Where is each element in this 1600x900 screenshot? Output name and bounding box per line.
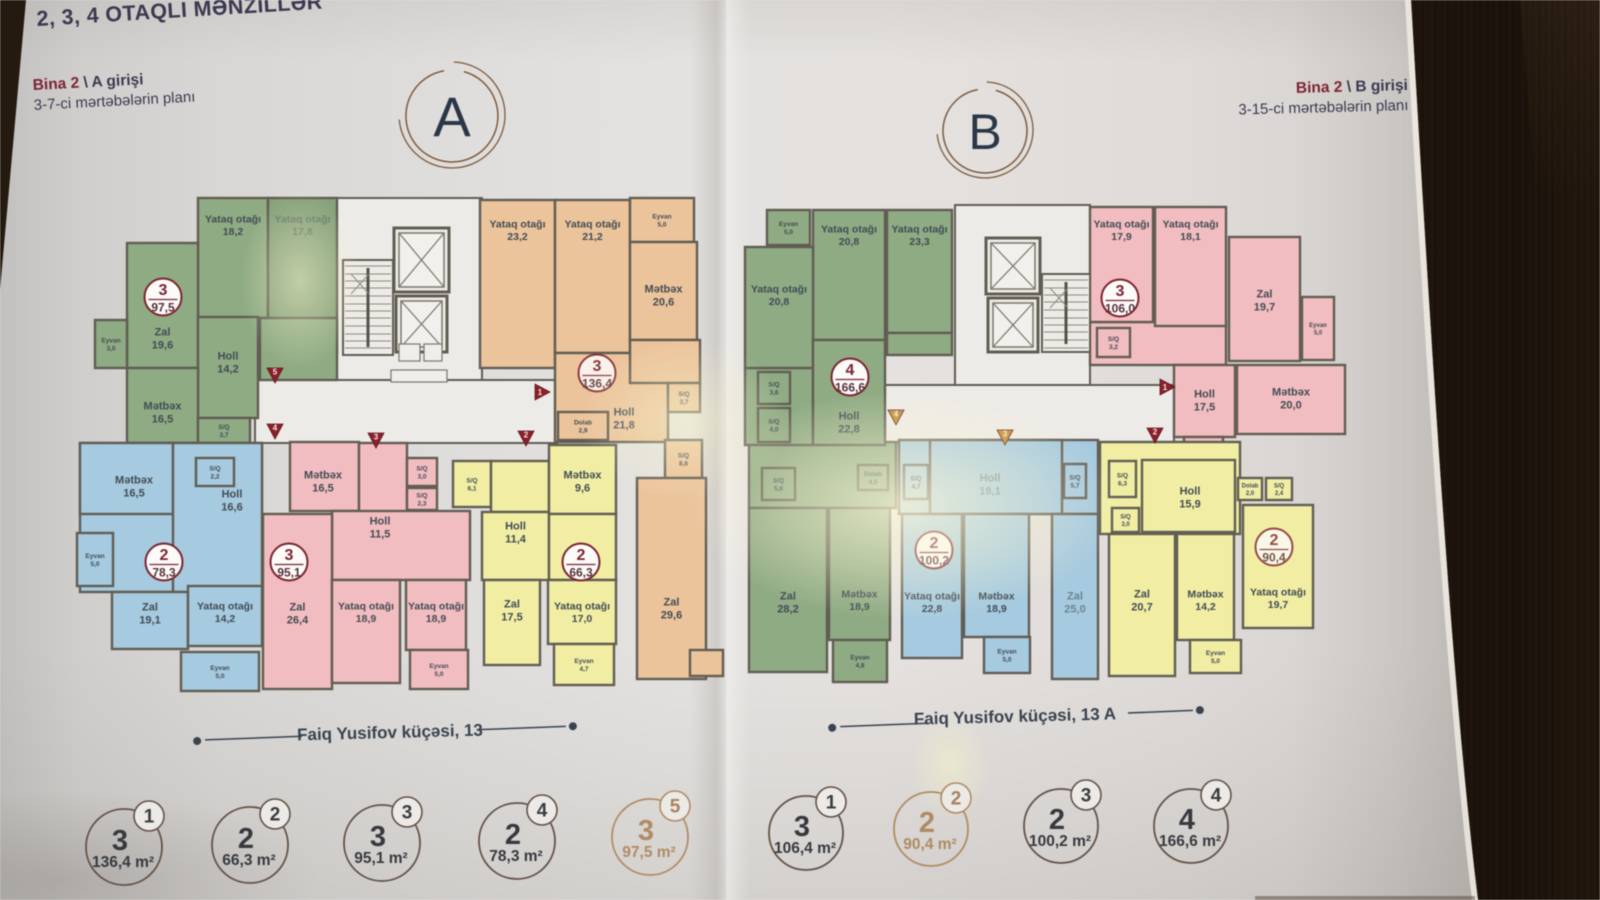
svg-text:Bina 2 \ B girişi: Bina 2 \ B girişi (1296, 77, 1408, 97)
svg-text:Zal19,7: Zal19,7 (1254, 288, 1275, 313)
svg-text:S/Q3,7: S/Q3,7 (218, 424, 229, 439)
svg-text:S/Q6,3: S/Q6,3 (1117, 472, 1128, 487)
svg-text:Zal17,5: Zal17,5 (501, 598, 522, 623)
svg-text:2: 2 (951, 789, 962, 810)
svg-text:4: 4 (846, 362, 855, 379)
svg-text:2: 2 (524, 431, 529, 440)
svg-text:2: 2 (919, 807, 935, 839)
svg-text:S/Q6,1: S/Q6,1 (466, 477, 477, 492)
svg-text:90,4: 90,4 (1262, 551, 1286, 565)
svg-text:Holl16,6: Holl16,6 (221, 488, 242, 513)
svg-text:3: 3 (593, 358, 602, 375)
svg-text:4: 4 (1211, 786, 1222, 807)
svg-text:Holl11,4: Holl11,4 (505, 520, 527, 545)
svg-text:Zal19,6: Zal19,6 (152, 326, 173, 351)
svg-text:S/Q2,3: S/Q2,3 (416, 492, 427, 507)
svg-text:4: 4 (537, 801, 548, 822)
svg-text:106,0: 106,0 (1105, 302, 1135, 316)
svg-text:1: 1 (538, 388, 543, 397)
svg-text:2: 2 (1049, 804, 1065, 836)
svg-text:78,3: 78,3 (152, 566, 176, 580)
svg-text:5: 5 (670, 797, 681, 818)
svg-text:1: 1 (144, 807, 155, 828)
svg-text:66,3 m²: 66,3 m² (222, 852, 275, 869)
svg-text:66,3: 66,3 (569, 566, 593, 580)
svg-text:Holl11,5: Holl11,5 (370, 515, 391, 540)
svg-text:4: 4 (273, 424, 278, 433)
svg-text:95,1 m²: 95,1 m² (354, 850, 407, 867)
svg-text:S/Q3,0: S/Q3,0 (1120, 515, 1131, 528)
svg-text:90,4 m²: 90,4 m² (903, 836, 956, 853)
svg-text:106,4 m²: 106,4 m² (774, 840, 836, 857)
svg-text:Holl17,5: Holl17,5 (1194, 388, 1215, 413)
svg-text:2: 2 (577, 547, 586, 564)
svg-text:Zal29,6: Zal29,6 (661, 596, 682, 621)
svg-text:B: B (968, 104, 1001, 160)
svg-text:2: 2 (270, 805, 281, 826)
svg-text:Holl14,2: Holl14,2 (217, 350, 238, 375)
svg-text:4: 4 (1179, 804, 1195, 836)
svg-text:97,5: 97,5 (151, 301, 175, 315)
svg-text:3: 3 (370, 821, 386, 853)
svg-text:3: 3 (112, 825, 128, 857)
svg-text:1: 1 (1163, 383, 1168, 392)
svg-text:166,6 m²: 166,6 m² (1159, 833, 1221, 850)
svg-text:3: 3 (285, 547, 294, 564)
svg-text:S/Q2,4: S/Q2,4 (1274, 484, 1285, 497)
svg-text:1: 1 (826, 793, 837, 814)
svg-text:97,5 m²: 97,5 m² (622, 844, 675, 861)
svg-text:Zal25,0: Zal25,0 (1064, 590, 1085, 615)
svg-text:3: 3 (1081, 786, 1092, 807)
svg-text:2: 2 (160, 547, 169, 564)
svg-text:3: 3 (159, 282, 168, 299)
svg-text:3: 3 (638, 815, 654, 847)
svg-text:2: 2 (1153, 428, 1158, 437)
svg-text:95,1: 95,1 (277, 566, 301, 580)
svg-text:3: 3 (794, 811, 810, 843)
svg-text:166,6: 166,6 (835, 381, 865, 395)
svg-text:A: A (433, 85, 471, 148)
svg-text:Zal19,1: Zal19,1 (139, 601, 160, 626)
svg-text:Zal20,7: Zal20,7 (1131, 588, 1152, 613)
svg-text:Holl15,9: Holl15,9 (1179, 485, 1200, 510)
svg-text:78,3 m²: 78,3 m² (489, 848, 542, 865)
svg-text:5: 5 (273, 368, 278, 377)
svg-text:136,4 m²: 136,4 m² (92, 854, 154, 871)
svg-text:S/Q3,2: S/Q3,2 (1108, 336, 1119, 351)
svg-text:3: 3 (374, 433, 379, 442)
svg-text:2: 2 (238, 823, 254, 855)
svg-text:S/Q3,0: S/Q3,0 (416, 465, 427, 480)
svg-text:3: 3 (1116, 283, 1125, 300)
svg-text:100,2 m²: 100,2 m² (1029, 833, 1091, 850)
svg-text:2: 2 (1270, 532, 1279, 549)
svg-text:2: 2 (505, 819, 521, 851)
svg-text:S/Q2,2: S/Q2,2 (209, 465, 220, 480)
svg-text:3: 3 (402, 803, 413, 824)
